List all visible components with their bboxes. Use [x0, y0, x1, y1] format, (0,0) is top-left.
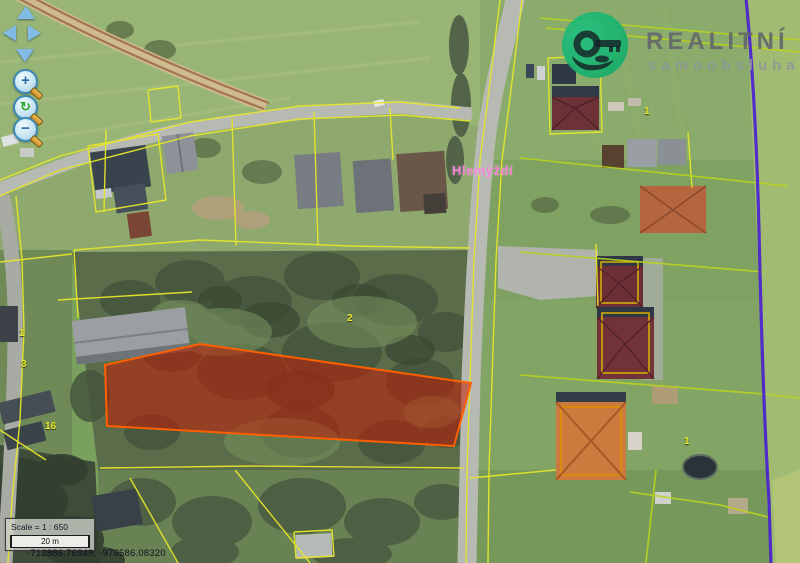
- zoom-out-button[interactable]: −: [13, 117, 38, 142]
- parcel-number-label: 16: [45, 421, 56, 432]
- scale-bar-label: 20 m: [41, 537, 59, 546]
- pan-left-button[interactable]: [3, 25, 16, 41]
- place-name-label: Hlemýždí: [452, 163, 513, 178]
- pan-down-button[interactable]: [16, 49, 34, 62]
- map-viewport[interactable]: + ↻ − REALITNÍ samoobsluha Hlemýždí 2 1 …: [0, 0, 800, 563]
- parcel-number-label: 1: [19, 328, 25, 339]
- parcel-number-label: 3: [21, 359, 27, 370]
- refresh-icon: ↻: [15, 97, 36, 118]
- parcel-number-label: 1: [684, 436, 690, 447]
- map-canvas[interactable]: [0, 0, 800, 563]
- pan-right-button[interactable]: [28, 25, 41, 41]
- parcel-number-label: 1: [644, 106, 650, 117]
- scale-text: Scale = 1 : 650: [11, 522, 94, 532]
- plus-icon: +: [15, 71, 36, 92]
- zoom-in-button[interactable]: +: [13, 69, 38, 94]
- coordinates-readout: -712886.76849, -976586.08320: [27, 548, 166, 559]
- pan-up-button[interactable]: [17, 6, 35, 19]
- minus-icon: −: [15, 119, 36, 140]
- parcel-number-label: 2: [347, 313, 353, 324]
- scale-bar: 20 m: [10, 535, 90, 548]
- pan-controls: [0, 0, 52, 70]
- pond: [683, 455, 717, 479]
- scale-panel: Scale = 1 : 650 20 m: [5, 518, 95, 551]
